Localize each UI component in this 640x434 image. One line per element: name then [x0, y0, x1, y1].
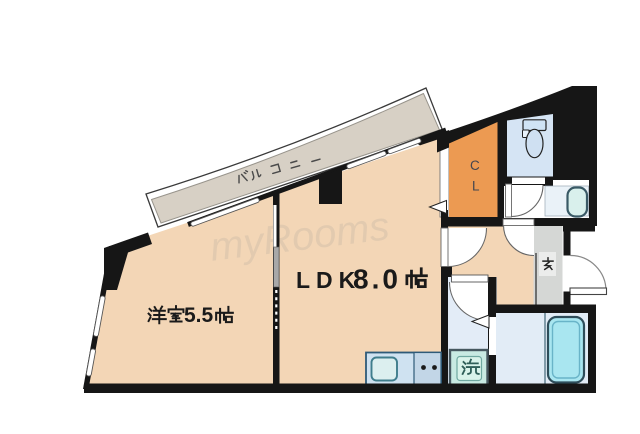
svg-text:5.5: 5.5 [184, 304, 214, 327]
svg-text:LDK: LDK [296, 267, 361, 293]
svg-text:8.0: 8.0 [353, 264, 401, 295]
svg-text:L: L [472, 179, 480, 194]
svg-text:C: C [470, 158, 480, 173]
